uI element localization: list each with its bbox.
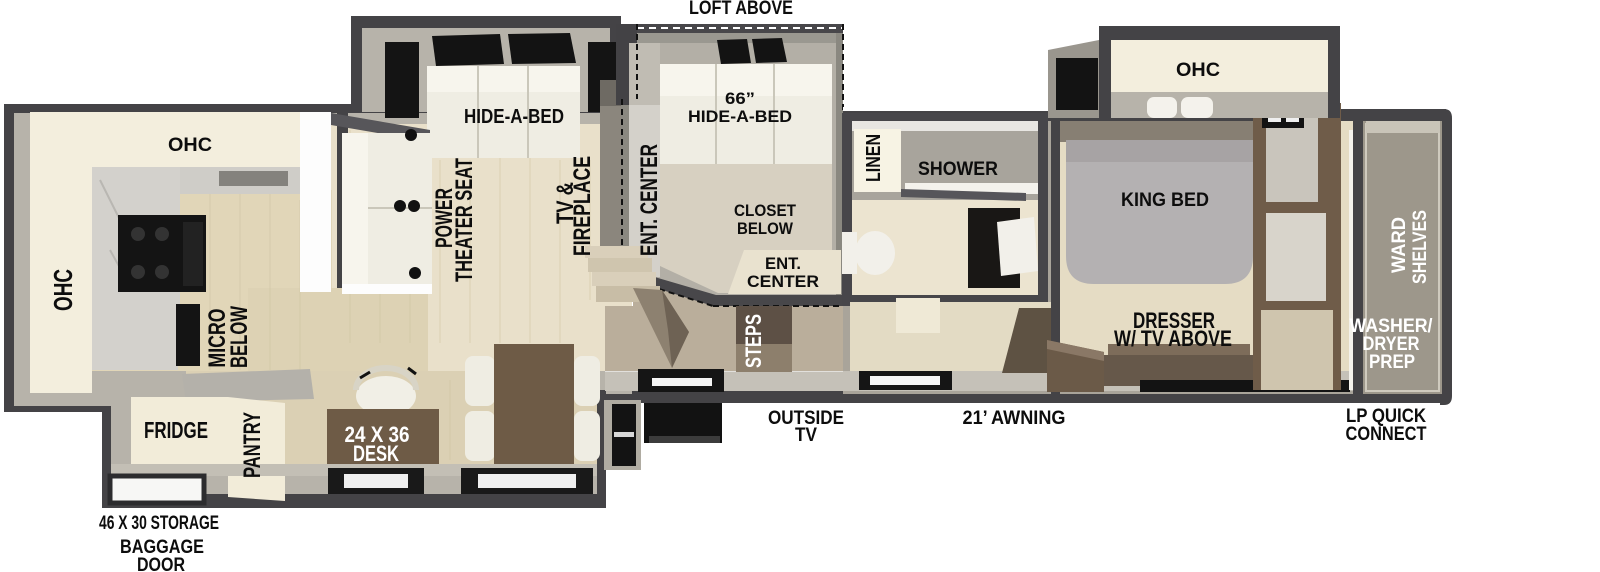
svg-text:STEPS: STEPS xyxy=(741,314,766,368)
svg-text:SHELVES: SHELVES xyxy=(1410,210,1431,284)
svg-text:66”: 66” xyxy=(725,89,755,108)
svg-text:THEATER SEAT: THEATER SEAT xyxy=(451,158,478,282)
svg-text:FRIDGE: FRIDGE xyxy=(144,417,208,443)
svg-text:BELOW: BELOW xyxy=(226,306,253,368)
svg-text:OHC: OHC xyxy=(48,269,78,311)
svg-text:PANTRY: PANTRY xyxy=(239,412,266,478)
svg-text:TV: TV xyxy=(795,425,817,446)
svg-text:W/ TV ABOVE: W/ TV ABOVE xyxy=(1114,326,1232,351)
svg-text:46 X 30 STORAGE: 46 X 30 STORAGE xyxy=(99,513,219,534)
svg-text:CENTER: CENTER xyxy=(747,272,819,291)
svg-text:SHOWER: SHOWER xyxy=(918,159,998,180)
svg-text:PREP: PREP xyxy=(1369,352,1415,373)
svg-text:DESK: DESK xyxy=(353,441,399,466)
svg-text:WARD: WARD xyxy=(1389,217,1410,273)
svg-text:KING BED: KING BED xyxy=(1121,190,1209,211)
svg-text:OHC: OHC xyxy=(168,135,212,156)
svg-text:FIREPLACE: FIREPLACE xyxy=(569,156,596,256)
svg-text:CLOSET: CLOSET xyxy=(734,201,797,220)
svg-text:LINEN: LINEN xyxy=(863,134,885,182)
svg-text:OHC: OHC xyxy=(1176,60,1220,81)
svg-text:ENT. CENTER: ENT. CENTER xyxy=(636,144,663,256)
svg-text:LOFT ABOVE: LOFT ABOVE xyxy=(689,0,793,19)
svg-text:21’ AWNING: 21’ AWNING xyxy=(963,408,1066,429)
svg-text:CONNECT: CONNECT xyxy=(1346,424,1427,445)
svg-text:DOOR: DOOR xyxy=(137,555,185,572)
svg-text:BELOW: BELOW xyxy=(737,219,794,238)
svg-text:HIDE-A-BED: HIDE-A-BED xyxy=(464,106,564,128)
svg-text:ENT.: ENT. xyxy=(765,254,801,273)
svg-text:HIDE-A-BED: HIDE-A-BED xyxy=(688,107,792,126)
